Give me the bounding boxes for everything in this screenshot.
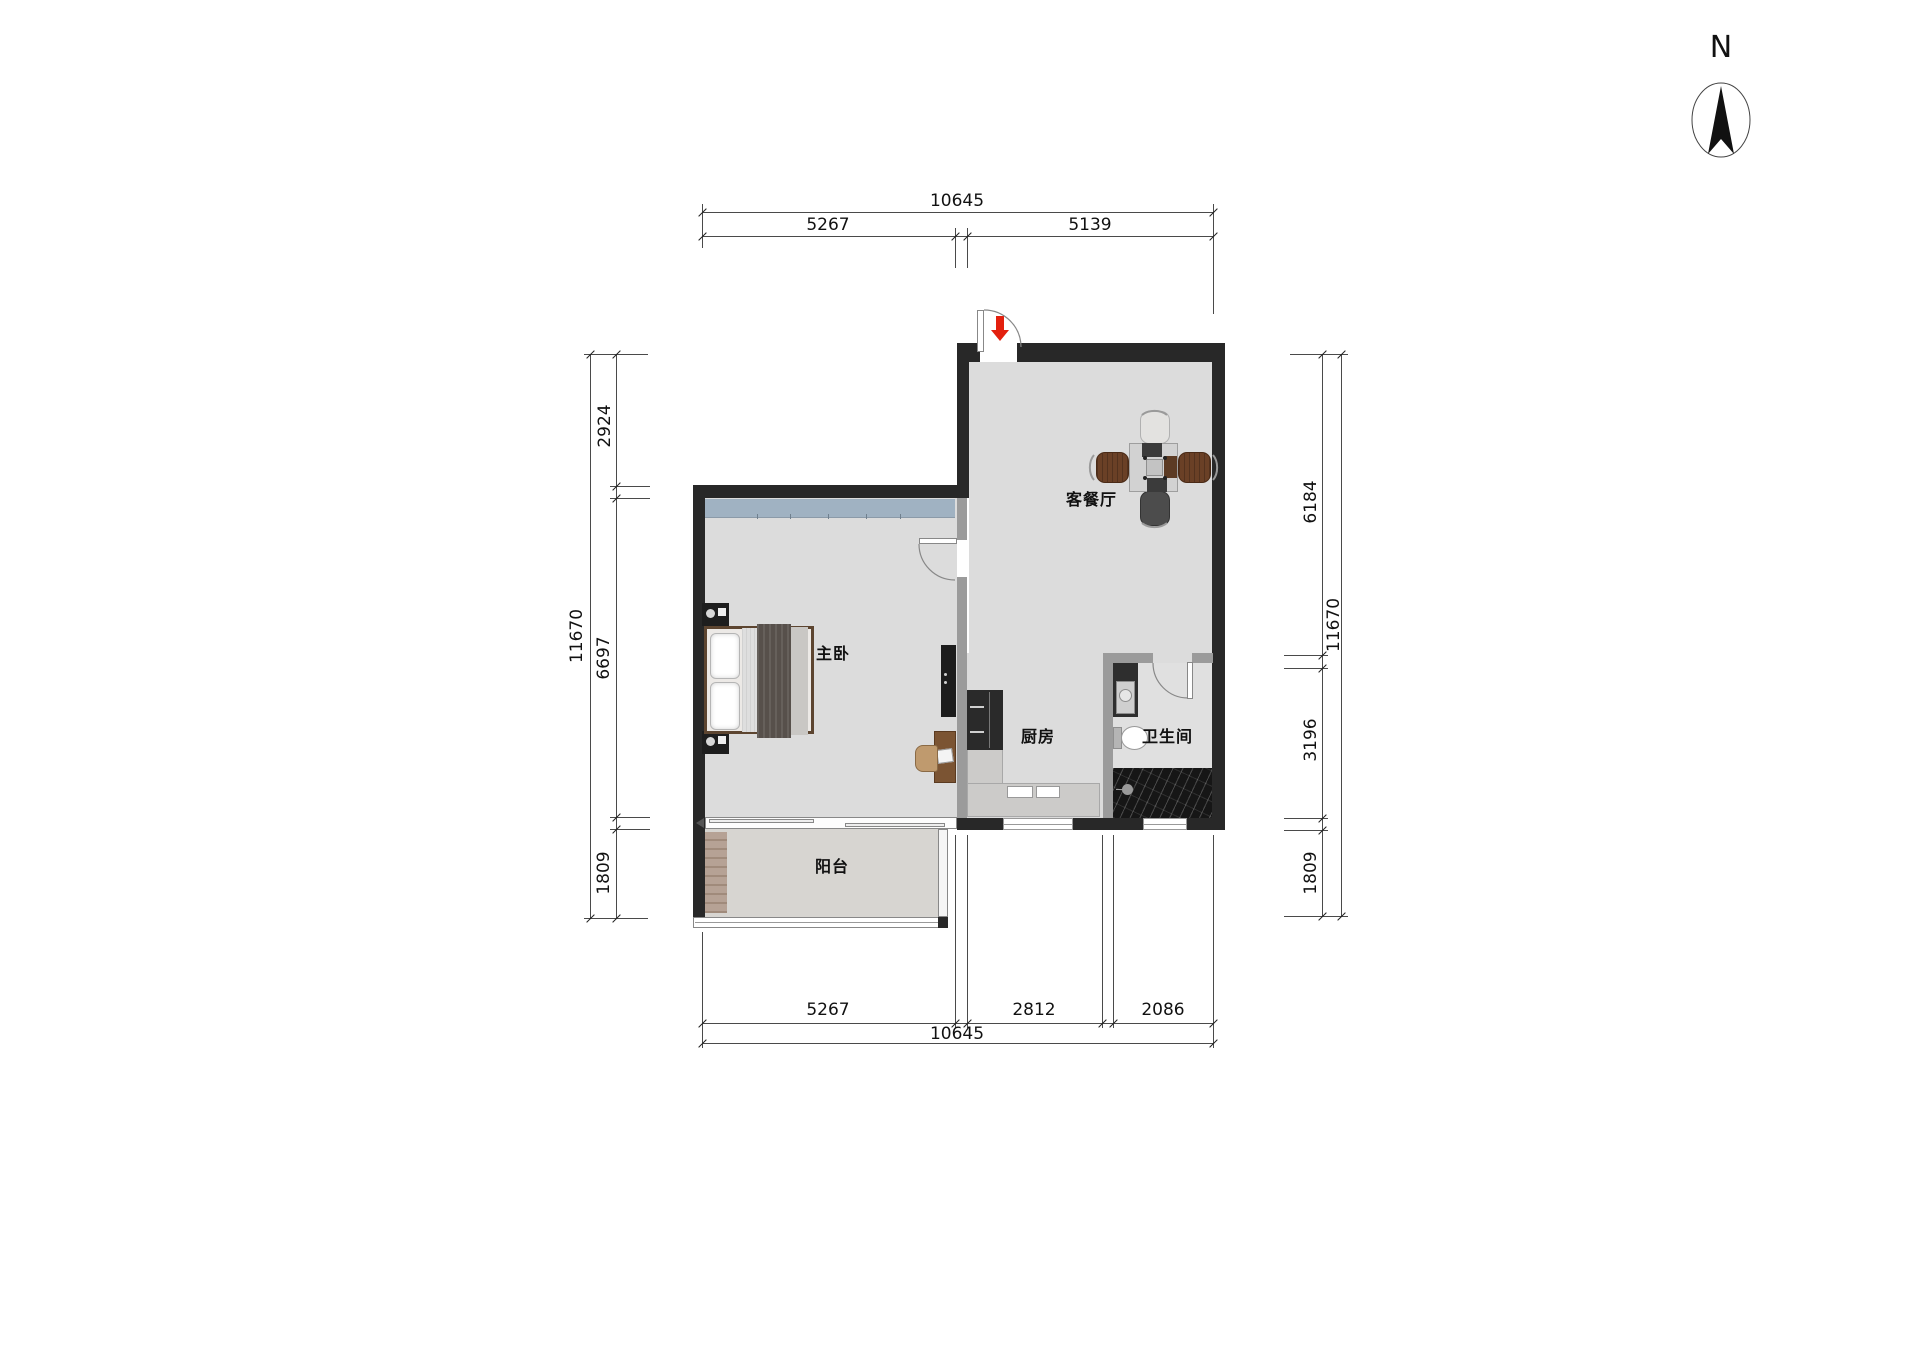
chair-chrome-right bbox=[1213, 455, 1217, 480]
dim-left-seg2: 6697 bbox=[595, 613, 613, 703]
dim-line bbox=[590, 354, 591, 918]
compass-north-label: N bbox=[1701, 30, 1741, 65]
dim-right-seg1: 6184 bbox=[1302, 457, 1320, 547]
chair-chrome-top bbox=[1142, 411, 1167, 415]
dim-line bbox=[616, 354, 617, 918]
floor-plan-canvas: N 客餐厅 主卧 厨房 卫生间 阳台 10645 5267 5139 5267 … bbox=[0, 0, 1920, 1361]
dim-extension bbox=[1213, 835, 1214, 1048]
dim-extension bbox=[702, 932, 703, 1048]
dim-bottom-seg3: 2086 bbox=[1113, 1000, 1213, 1020]
dim-right-seg3: 1809 bbox=[1302, 828, 1320, 918]
dim-right-seg2: 3196 bbox=[1302, 695, 1320, 785]
dim-line bbox=[1322, 354, 1323, 916]
room-label-living: 客餐厅 bbox=[1066, 486, 1117, 510]
dim-top-seg2: 5139 bbox=[1040, 215, 1140, 235]
room-label-kitchen: 厨房 bbox=[1021, 723, 1055, 747]
bedroom-door-arc bbox=[919, 544, 955, 580]
room-label-bathroom: 卫生间 bbox=[1142, 723, 1193, 747]
dim-extension bbox=[955, 835, 956, 1028]
entry-door-arc bbox=[984, 310, 1021, 347]
dim-right-total: 11670 bbox=[1325, 580, 1343, 670]
dim-left-seg3: 1809 bbox=[595, 828, 613, 918]
dim-extension bbox=[1102, 835, 1103, 1028]
dim-extension bbox=[967, 835, 968, 1028]
compass-needle-icon bbox=[1708, 86, 1734, 154]
dim-bottom-seg1: 5267 bbox=[778, 1000, 878, 1020]
dim-bottom-seg2: 2812 bbox=[984, 1000, 1084, 1020]
room-label-balcony: 阳台 bbox=[815, 853, 849, 877]
dim-left-total: 11670 bbox=[568, 591, 586, 681]
chair-chrome-bottom bbox=[1142, 523, 1167, 527]
dim-bottom-total: 10645 bbox=[857, 1024, 1057, 1044]
dim-line bbox=[702, 236, 1213, 237]
dim-left-seg1: 2924 bbox=[596, 381, 614, 471]
room-label-bedroom: 主卧 bbox=[816, 640, 850, 664]
bathroom-door-arc bbox=[1153, 663, 1188, 698]
chair-chrome-left bbox=[1090, 455, 1094, 480]
dim-top-seg1: 5267 bbox=[778, 215, 878, 235]
dim-top-total: 10645 bbox=[857, 191, 1057, 211]
dim-line bbox=[702, 212, 1213, 213]
dim-extension bbox=[1213, 204, 1214, 314]
